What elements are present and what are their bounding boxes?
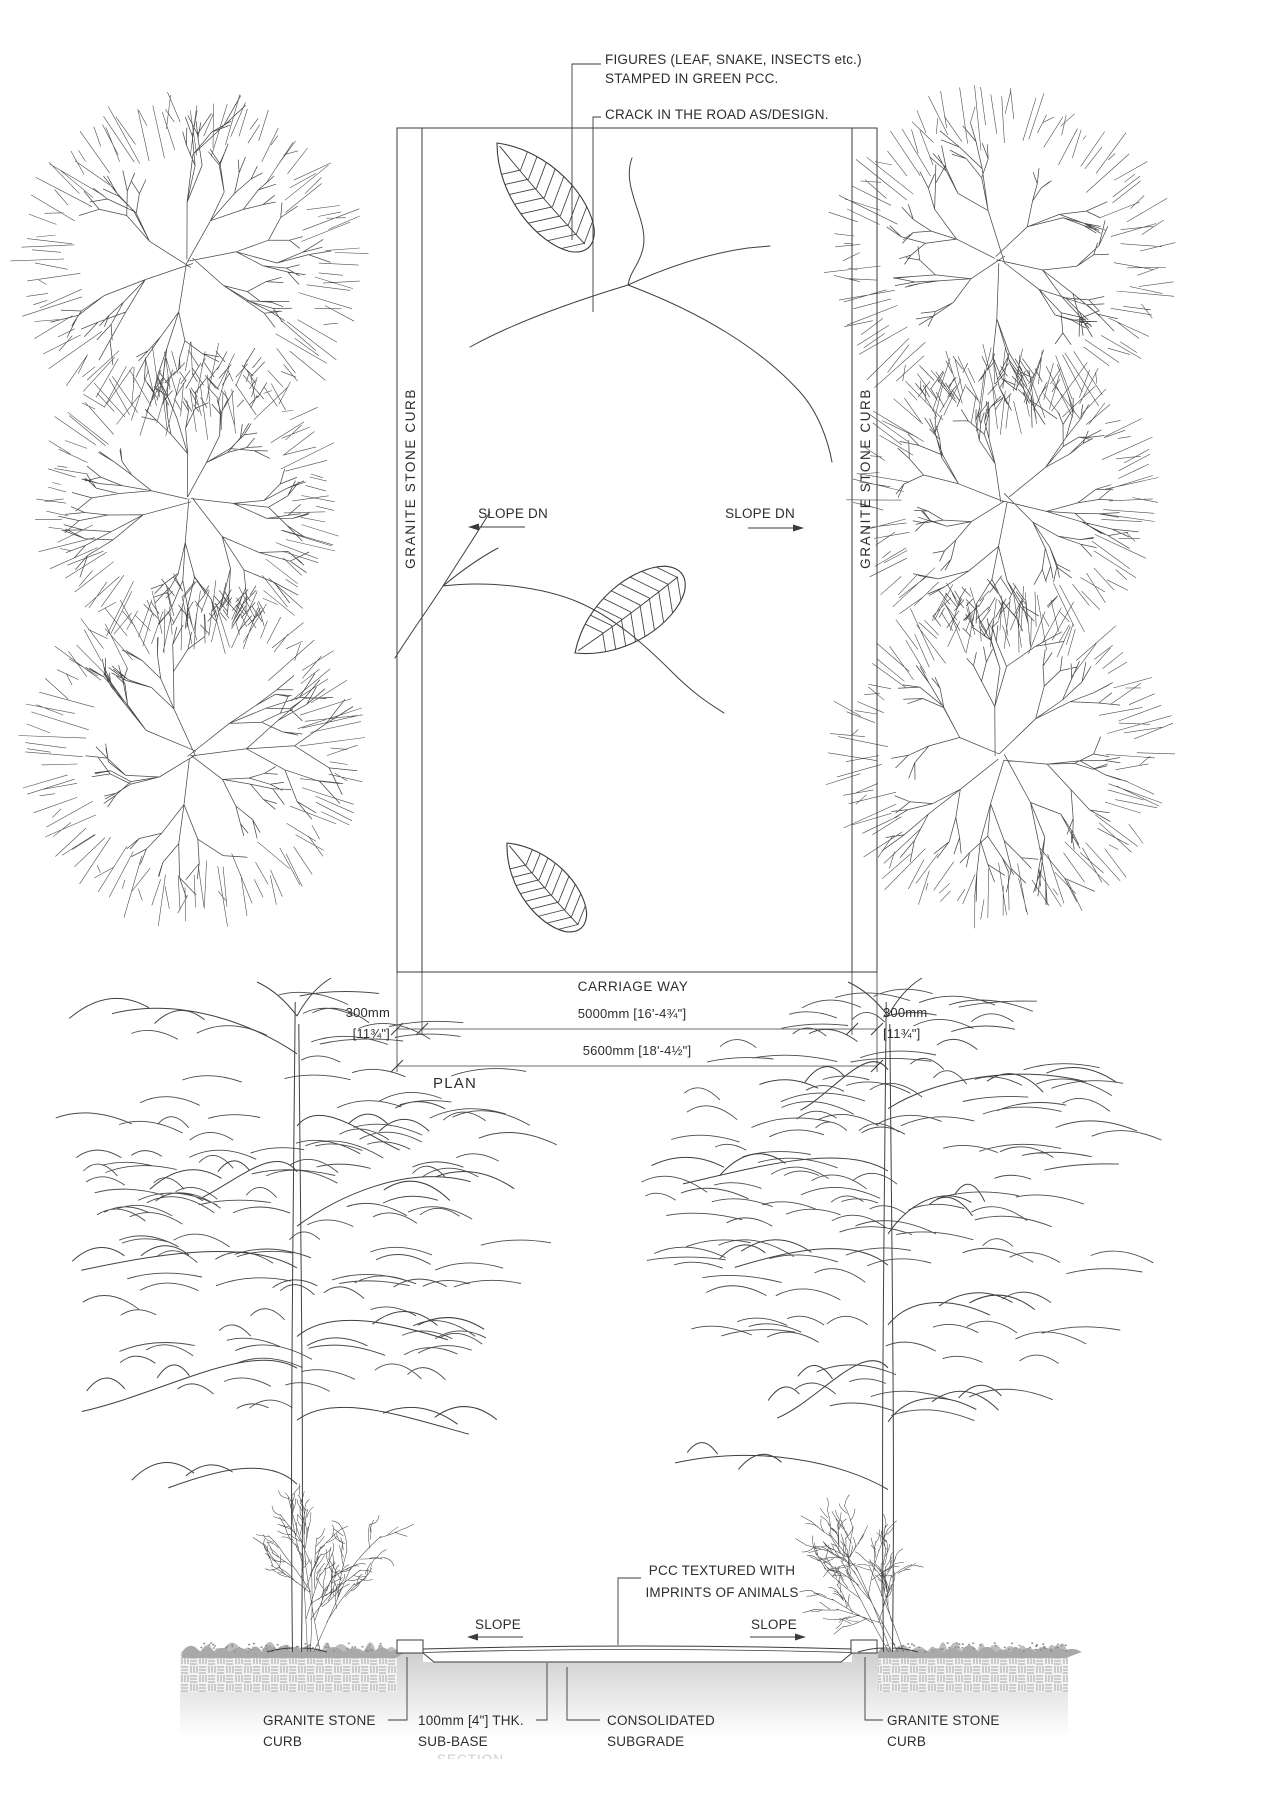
carriage-way-label: CARRIAGE WAY [578, 977, 689, 996]
section-title-faded: SECTION [437, 1750, 504, 1759]
dim-total-width: 5600mm [18'-4½"] [583, 1041, 692, 1060]
plan-curb-label-right: GRANITE STONE CURB [856, 388, 875, 569]
crack-callout: CRACK IN THE ROAD AS/DESIGN. [605, 105, 829, 124]
pcc-callout: PCC TEXTURED WITH IMPRINTS OF ANIMALS [645, 1560, 798, 1604]
plan-title: PLAN [433, 1074, 477, 1093]
dim-curb-left: 300mm [11¾"] [322, 1002, 390, 1044]
plan-slope-label-left: SLOPE DN [478, 504, 548, 523]
dim-carriage-width: 5000mm [16'-4¾"] [578, 1004, 687, 1023]
plan-curb-label-left: GRANITE STONE CURB [401, 388, 420, 569]
section-slope-label-right: SLOPE [751, 1615, 797, 1634]
linework-svg [0, 0, 1273, 1800]
section-tree-drawings [56, 978, 1162, 1652]
crack-drawings [395, 158, 832, 713]
dim-curb-right: 300mm [11¾"] [883, 1002, 927, 1044]
leaf-figures [468, 118, 705, 950]
section-curb-label-right: GRANITE STONE CURB [887, 1710, 1000, 1752]
plan-structure [391, 64, 883, 1072]
section-subbase-label: 100mm [4"] THK. SUB-BASE [418, 1710, 524, 1752]
plan-slope-label-right: SLOPE DN [725, 504, 795, 523]
drawing-sheet: FIGURES (LEAF, SNAKE, INSECTS etc.) STAM… [0, 0, 1273, 1800]
section-subgrade-label: CONSOLIDATED SUBGRADE [607, 1710, 715, 1752]
figures-callout: FIGURES (LEAF, SNAKE, INSECTS etc.) STAM… [605, 50, 862, 88]
section-slope-label-left: SLOPE [475, 1615, 521, 1634]
section-curb-label-left: GRANITE STONE CURB [263, 1710, 376, 1752]
